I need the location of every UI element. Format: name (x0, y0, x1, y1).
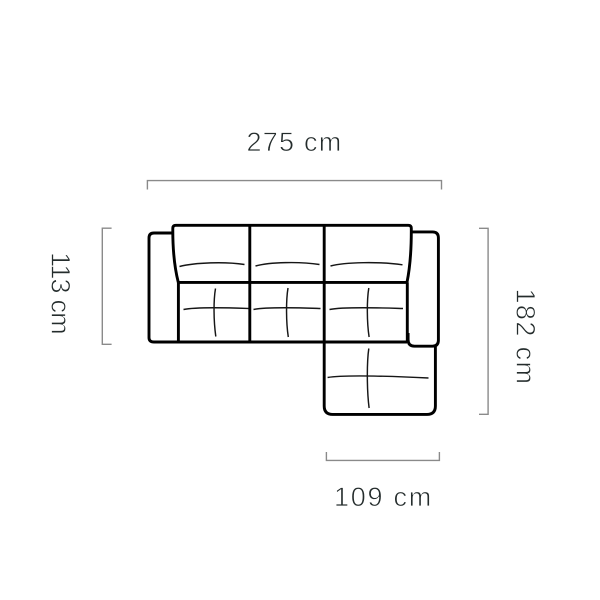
svg-text:275 cm: 275 cm (246, 127, 342, 157)
svg-text:113 cm: 113 cm (45, 252, 75, 334)
svg-text:182 cm: 182 cm (510, 289, 540, 386)
svg-text:109 cm: 109 cm (334, 482, 433, 512)
